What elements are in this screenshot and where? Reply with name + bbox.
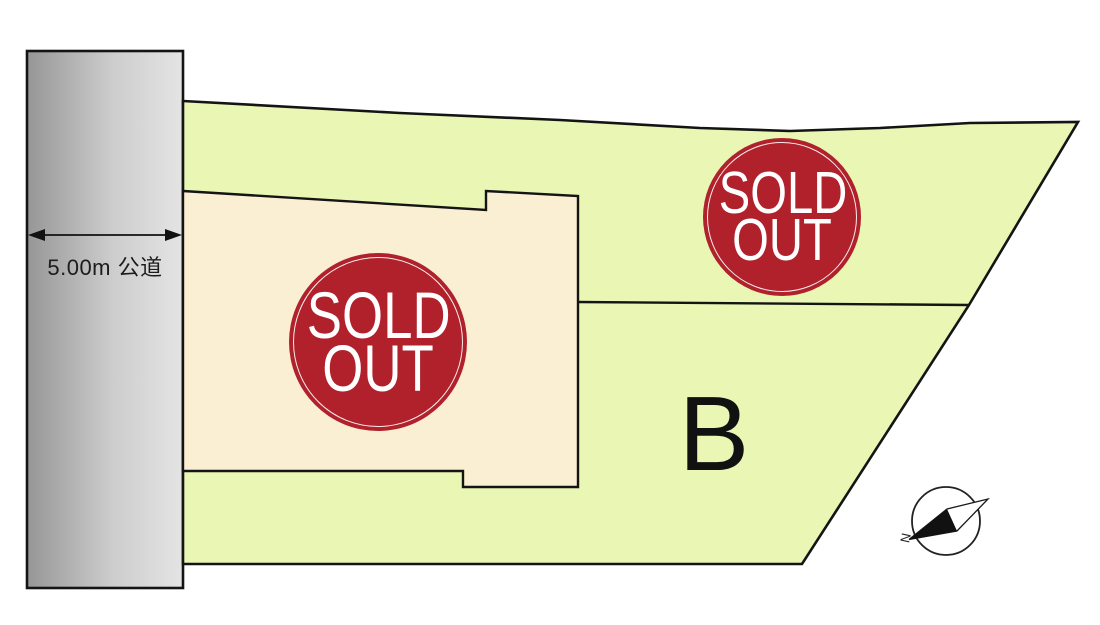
site-plan-canvas: N: [0, 0, 1100, 625]
sold-out-line2: OUT: [307, 342, 449, 395]
sold-out-badge-text: SOLD OUT: [307, 289, 449, 395]
road-strip: [27, 51, 183, 588]
sold-out-badge-upper-lot: SOLD OUT: [703, 138, 861, 296]
sold-out-badge-lot-a: SOLD OUT: [289, 253, 467, 431]
lot-b-label: B: [679, 381, 750, 487]
sold-out-badge-text: SOLD OUT: [719, 170, 845, 264]
compass-north-label: N: [897, 532, 914, 544]
lot-plan: N 5.00m 公道 SOLD OUT SOLD OUT B: [0, 0, 1100, 625]
road-width-label: 5.00m 公道: [27, 250, 183, 282]
sold-out-line2: OUT: [719, 217, 845, 264]
compass-icon: N: [897, 487, 988, 555]
